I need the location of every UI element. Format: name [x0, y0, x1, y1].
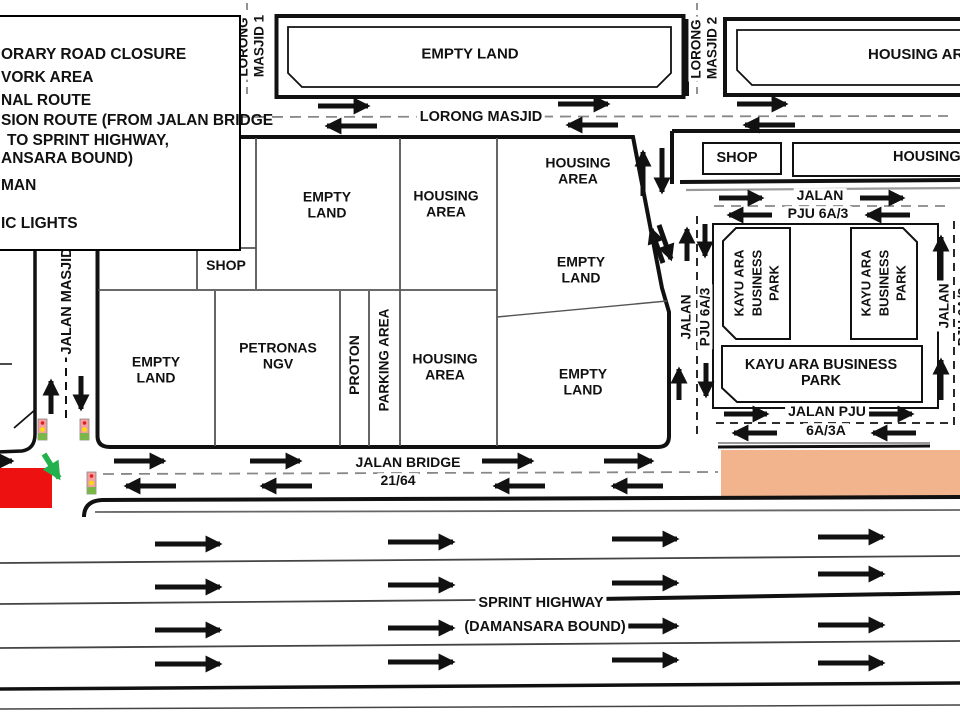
area-label-empty-land: EMPTY LAND [287, 189, 367, 220]
area-label-housing-area-s: HOUSING AREA [403, 351, 488, 382]
area-label-kayu-ara-south: KAYU ARA BUSINESS PARK [736, 357, 906, 389]
road-closure-diagram: ORARY ROAD CLOSURE VORK AREA NAL ROUTE S… [0, 0, 960, 720]
legend-item-original-route: NAL ROUTE [1, 92, 91, 110]
jalan-masjid-edges [0, 247, 66, 452]
lorong-masjid-centerline [236, 116, 948, 117]
traffic-light-icon [38, 419, 47, 440]
area-label-proton: PROTON [347, 335, 363, 395]
road-label-lorong-masjid: LORONG MASJID [417, 109, 545, 125]
area-label-shop: SHOP [206, 258, 246, 274]
road-label-lorong-masjid-2b: MASJID 2 [704, 14, 719, 82]
legend-item-diversion-route-3: ANSARA BOUND) [1, 150, 133, 168]
road-label-jalan-pju-left-2: PJU 6A/3 [697, 285, 712, 350]
area-label-kayu-ara-east: KAYU ARA BUSINESS PARK [858, 243, 911, 323]
road-label-jalan-bridge-2: 21/64 [377, 473, 418, 489]
road-label-jalan-pju-top-2: PJU 6A/3 [785, 206, 852, 222]
area-label-shop-east: SHOP [716, 150, 757, 166]
area-label-housing-area-north: HOUSING AREA [868, 47, 960, 64]
road-label-sprint-highway-2: (DAMANSARA BOUND) [461, 619, 628, 635]
area-label-housing-area-east: HOUSING AREA [893, 149, 960, 165]
area-label-kayu-ara-west: KAYU ARA BUSINESS PARK [731, 243, 784, 323]
area-label-empty-land-mid: EMPTY LAND [546, 254, 616, 285]
area-label-petronas-ngv: PETRONAS NGV [231, 340, 326, 371]
road-label-jalan-masjid: JALAN MASJID [59, 244, 75, 357]
legend-item-diversion-route-2: TO SPRINT HIGHWAY, [7, 132, 169, 150]
area-label-housing-area-ne: HOUSING AREA [536, 155, 621, 186]
area-label-empty-land-north: EMPTY LAND [421, 47, 518, 64]
legend-item-work-area: VORK AREA [1, 69, 93, 87]
area-label-empty-land-south: EMPTY LAND [548, 366, 618, 397]
area-label-parking-area: PARKING AREA [376, 309, 391, 412]
legend-item-traffic-lights: IC LIGHTS [1, 215, 78, 233]
traffic-light-icon [80, 419, 89, 440]
area-label-housing-area: HOUSING AREA [404, 188, 489, 219]
road-label-jalan-pju-top: JALAN [794, 188, 847, 204]
work-area-overlay [721, 450, 960, 497]
road-label-jalan-pju-6a3a-2: 6A/3A [803, 423, 849, 439]
road-label-sprint-highway: SPRINT HIGHWAY [475, 595, 606, 611]
legend-item-diversion-route: SION ROUTE (FROM JALAN BRIDGE [1, 112, 273, 130]
road-label-jalan-pju-6a3a: JALAN PJU [785, 404, 869, 420]
east-structures [672, 131, 960, 447]
road-label-lorong-masjid-1b: MASJID 1 [251, 12, 266, 80]
road-label-jalan-pju-left: JALAN [678, 291, 693, 342]
legend-item-road-closure: ORARY ROAD CLOSURE [1, 46, 186, 64]
road-label-jalan-bridge: JALAN BRIDGE [352, 455, 463, 471]
road-closure-marker [0, 468, 52, 508]
road-label-lorong-masjid-2: LORONG [688, 16, 703, 81]
legend-item-flagman: MAN [1, 177, 36, 195]
area-label-empty-land-sw: EMPTY LAND [121, 354, 191, 385]
traffic-light-icon [87, 472, 96, 494]
road-label-jalan-pju-right-2: PJU 6A/3 [955, 285, 960, 350]
road-label-jalan-pju-right: JALAN [936, 280, 951, 331]
